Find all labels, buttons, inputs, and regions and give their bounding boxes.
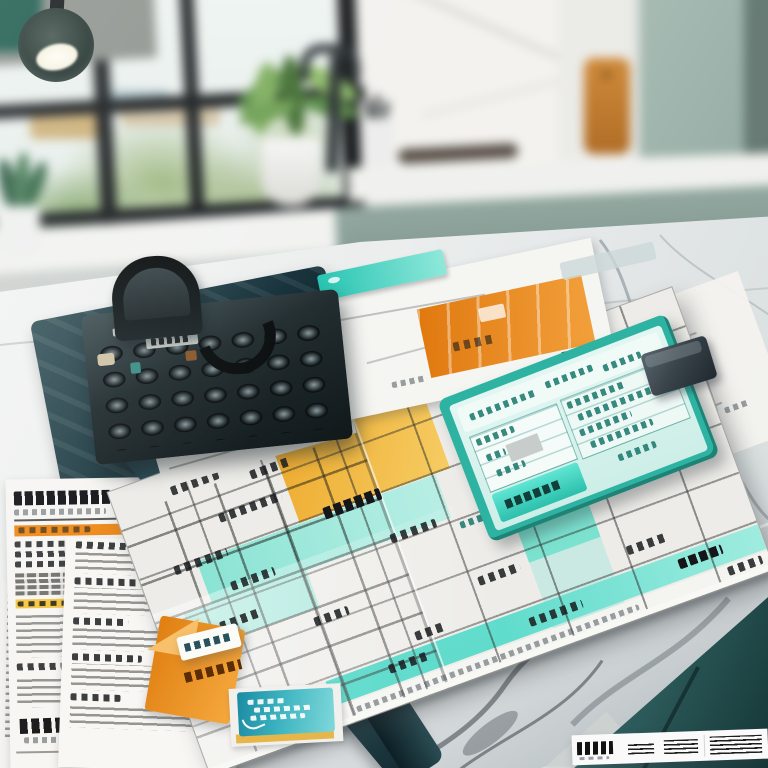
- sketch-scribble: [724, 399, 750, 414]
- strip-logo-mark: [577, 741, 613, 755]
- strip-divider: [704, 735, 706, 757]
- strip-sparkle: [328, 276, 341, 284]
- strip-logo-sub: [579, 756, 609, 760]
- card-scribble: [254, 705, 314, 713]
- teal-note-card: [237, 688, 335, 737]
- strip-text-block: [664, 739, 698, 754]
- flip-display-screen: [121, 265, 191, 321]
- calculator-teal-key: [130, 362, 141, 374]
- header-scribble: [602, 351, 642, 372]
- bar-text-scribble: [18, 526, 90, 533]
- flag-label-scribble: [184, 633, 233, 652]
- pendant-lamp: [18, 8, 94, 82]
- strip-text-block: [628, 742, 654, 755]
- table-grey-cell: [505, 433, 543, 462]
- lamp-bulb-glow: [34, 40, 80, 74]
- card-scribble: [247, 698, 287, 705]
- document-subtitle-scribble: [14, 508, 106, 516]
- subhead-scribble: [70, 693, 120, 702]
- subhead-scribble: [72, 653, 142, 662]
- cell-scribble: [486, 448, 507, 462]
- calculator-orange-key: [185, 350, 197, 361]
- strip-text-block: [710, 735, 763, 755]
- kitchen-scene: [0, 0, 768, 768]
- subhead-scribble: [73, 617, 128, 626]
- header-scribble: [544, 364, 593, 388]
- calculator-beige-key: [97, 353, 115, 367]
- sheet-scribble: [391, 375, 427, 388]
